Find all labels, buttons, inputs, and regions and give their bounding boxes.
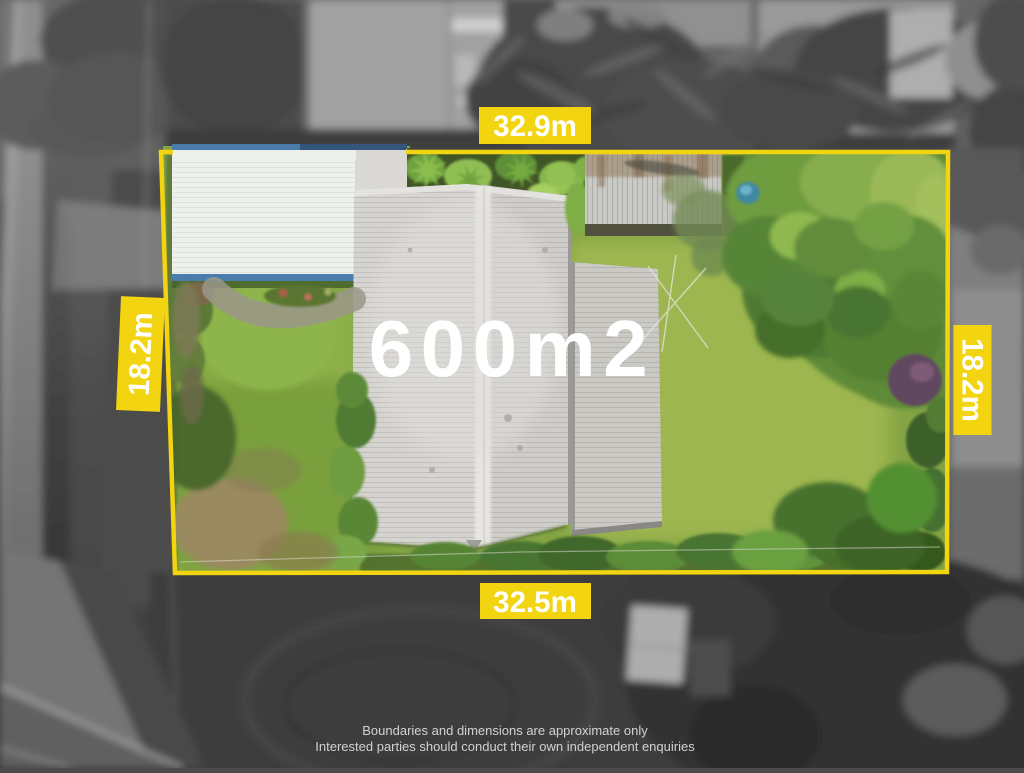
svg-text:32.5m: 32.5m — [493, 586, 577, 619]
svg-text:18.2m: 18.2m — [123, 312, 160, 397]
svg-text:Interested parties should cond: Interested parties should conduct their … — [315, 739, 695, 754]
svg-text:600m2: 600m2 — [369, 304, 656, 393]
svg-text:Boundaries and dimensions are: Boundaries and dimensions are approximat… — [362, 723, 648, 738]
svg-text:18.2m: 18.2m — [956, 338, 989, 422]
svg-text:32.9m: 32.9m — [493, 110, 577, 143]
